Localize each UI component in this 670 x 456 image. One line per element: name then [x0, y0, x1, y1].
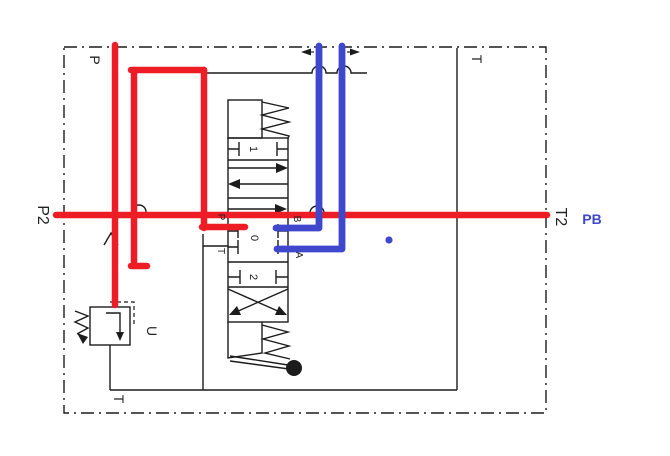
blue-dot	[385, 236, 392, 243]
red-flow-annotation	[56, 45, 547, 305]
spring-box-bottom	[228, 322, 262, 358]
valve-section-dividers	[228, 160, 288, 287]
boundary-label-t2: T2	[552, 208, 569, 227]
base-plumbing	[104, 48, 457, 390]
spring-bottom-icon	[262, 325, 290, 359]
boundary-label-p2: P2	[34, 205, 51, 225]
relief-internal-path	[106, 313, 120, 334]
valve-port-label-t: T	[215, 248, 226, 254]
arrowhead-right-icon	[276, 163, 288, 173]
relief-valve	[75, 302, 134, 345]
relief-label-u: U	[144, 326, 160, 336]
valve-port-label-a: A	[293, 252, 304, 259]
valve-label-pos1: 1	[247, 146, 259, 152]
lever-knob-icon	[286, 360, 302, 376]
valve-label-pos0: 0	[248, 235, 260, 241]
flow-arrow-right-icon	[350, 49, 360, 56]
relief-spring-icon	[75, 311, 88, 334]
boundary-label-p: P	[87, 55, 103, 64]
boundary-label-t-bottom: T	[111, 395, 127, 404]
spring-box-top	[228, 100, 262, 138]
arrowhead-down-icon	[116, 332, 124, 341]
directional-valve	[228, 100, 302, 376]
valve-port-label-p: P	[215, 214, 226, 221]
blue-a-port-stroke	[277, 46, 342, 249]
valve-label-pos2: 2	[247, 274, 259, 280]
boundary-label-t-top: T	[469, 55, 485, 64]
flow-arrow-left-icon	[301, 49, 311, 56]
hydraulic-schematic-canvas: P T T P2 T2 PB U 1 0 2 P T B A	[0, 0, 670, 456]
arrowhead-left-icon	[228, 179, 240, 189]
lever-arm	[230, 356, 289, 369]
annotation-label-pb: PB	[582, 211, 601, 227]
spring-top-icon	[262, 102, 289, 138]
relief-spring-arrow	[77, 333, 88, 344]
valve-port-label-b: B	[291, 216, 302, 223]
